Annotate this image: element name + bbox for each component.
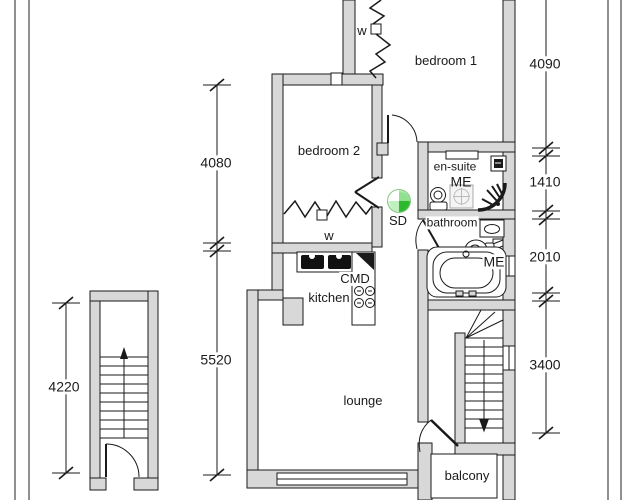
kitchen-label: kitchen — [308, 291, 349, 305]
balcony-label: balcony — [445, 469, 490, 483]
wall-jamb — [331, 73, 342, 85]
wardrobe-rail-bedroom2-icon — [284, 201, 372, 220]
bedroom2-door-icon — [355, 177, 379, 208]
dim-3400: 3400 — [527, 357, 562, 372]
bedroom2-label: bedroom 2 — [298, 144, 360, 158]
hallway-door-icon — [388, 115, 417, 143]
kitchen-sink-icon — [297, 252, 355, 272]
flat-stairs — [465, 310, 503, 431]
ensuite-label: en-suite — [433, 160, 478, 173]
wardrobe2-label: w — [324, 229, 333, 243]
lounge-label: lounge — [343, 394, 382, 408]
stair-direction-arrow-icon — [120, 347, 128, 359]
dim-4220: 4220 — [46, 379, 81, 394]
wardrobe-rail-bedroom1-icon — [370, 0, 390, 78]
me-bathroom-label: ME — [483, 254, 506, 269]
me-ensuite-label: ME — [451, 174, 472, 189]
communal-stairs — [90, 291, 158, 490]
corner-shower-icon — [478, 183, 505, 210]
ensuite-toilet-icon — [430, 188, 447, 211]
dim-5520: 5520 — [198, 352, 233, 367]
wardrobe1-label: w — [357, 24, 366, 38]
smoke-detector-icon — [387, 189, 411, 213]
dim-4080: 4080 — [198, 155, 233, 170]
dim-4090: 4090 — [527, 56, 562, 71]
cooker-cmd-label: CMD — [339, 272, 371, 286]
bathroom-sink-icon — [480, 220, 504, 237]
ensuite-extractor-icon — [491, 156, 506, 171]
stair-direction-arrow-icon — [480, 420, 488, 431]
dim-1410: 1410 — [527, 174, 562, 189]
entrance-door-icon — [106, 444, 139, 477]
bedroom1-label: bedroom 1 — [415, 54, 477, 68]
bathroom-label: bathroom — [426, 216, 479, 229]
dim-2010: 2010 — [527, 249, 562, 264]
floor-plan: bedroom 1 bedroom 2 en-suite ME bathroom… — [0, 0, 635, 500]
smoke-detector-label: SD — [389, 214, 407, 228]
